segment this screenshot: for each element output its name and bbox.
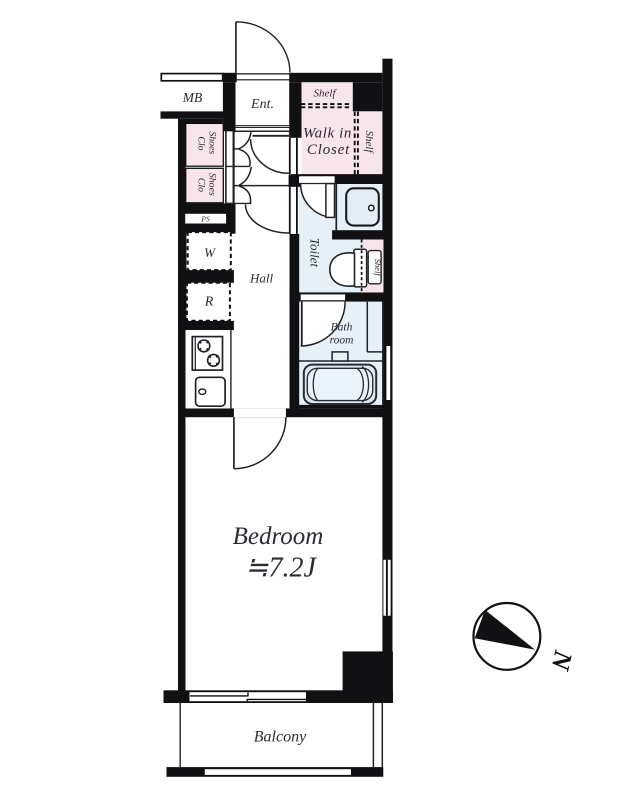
svg-text:Shoes: Shoes	[207, 131, 218, 154]
svg-text:Bedroom: Bedroom	[233, 523, 324, 550]
svg-text:Bath: Bath	[331, 322, 353, 334]
svg-text:room: room	[330, 335, 354, 347]
svg-text:Closet: Closet	[307, 142, 350, 158]
svg-text:Shelf: Shelf	[373, 259, 383, 278]
svg-text:Shelf: Shelf	[314, 88, 338, 100]
svg-text:Ent.: Ent.	[250, 97, 274, 112]
svg-text:W: W	[204, 245, 216, 260]
svg-text:Clo: Clo	[195, 178, 206, 192]
svg-text:≒7.2J: ≒7.2J	[245, 553, 317, 584]
svg-text:Toilet: Toilet	[308, 238, 323, 268]
svg-text:MB: MB	[182, 90, 203, 105]
svg-text:Balcony: Balcony	[254, 729, 307, 746]
svg-text:Clo: Clo	[195, 136, 206, 150]
svg-text:Walk in: Walk in	[303, 126, 352, 142]
svg-text:Hall: Hall	[249, 271, 274, 286]
svg-text:Shoes: Shoes	[207, 173, 218, 196]
svg-text:R: R	[204, 295, 214, 310]
svg-text:Shelf: Shelf	[363, 131, 375, 155]
svg-text:PS: PS	[200, 214, 210, 223]
